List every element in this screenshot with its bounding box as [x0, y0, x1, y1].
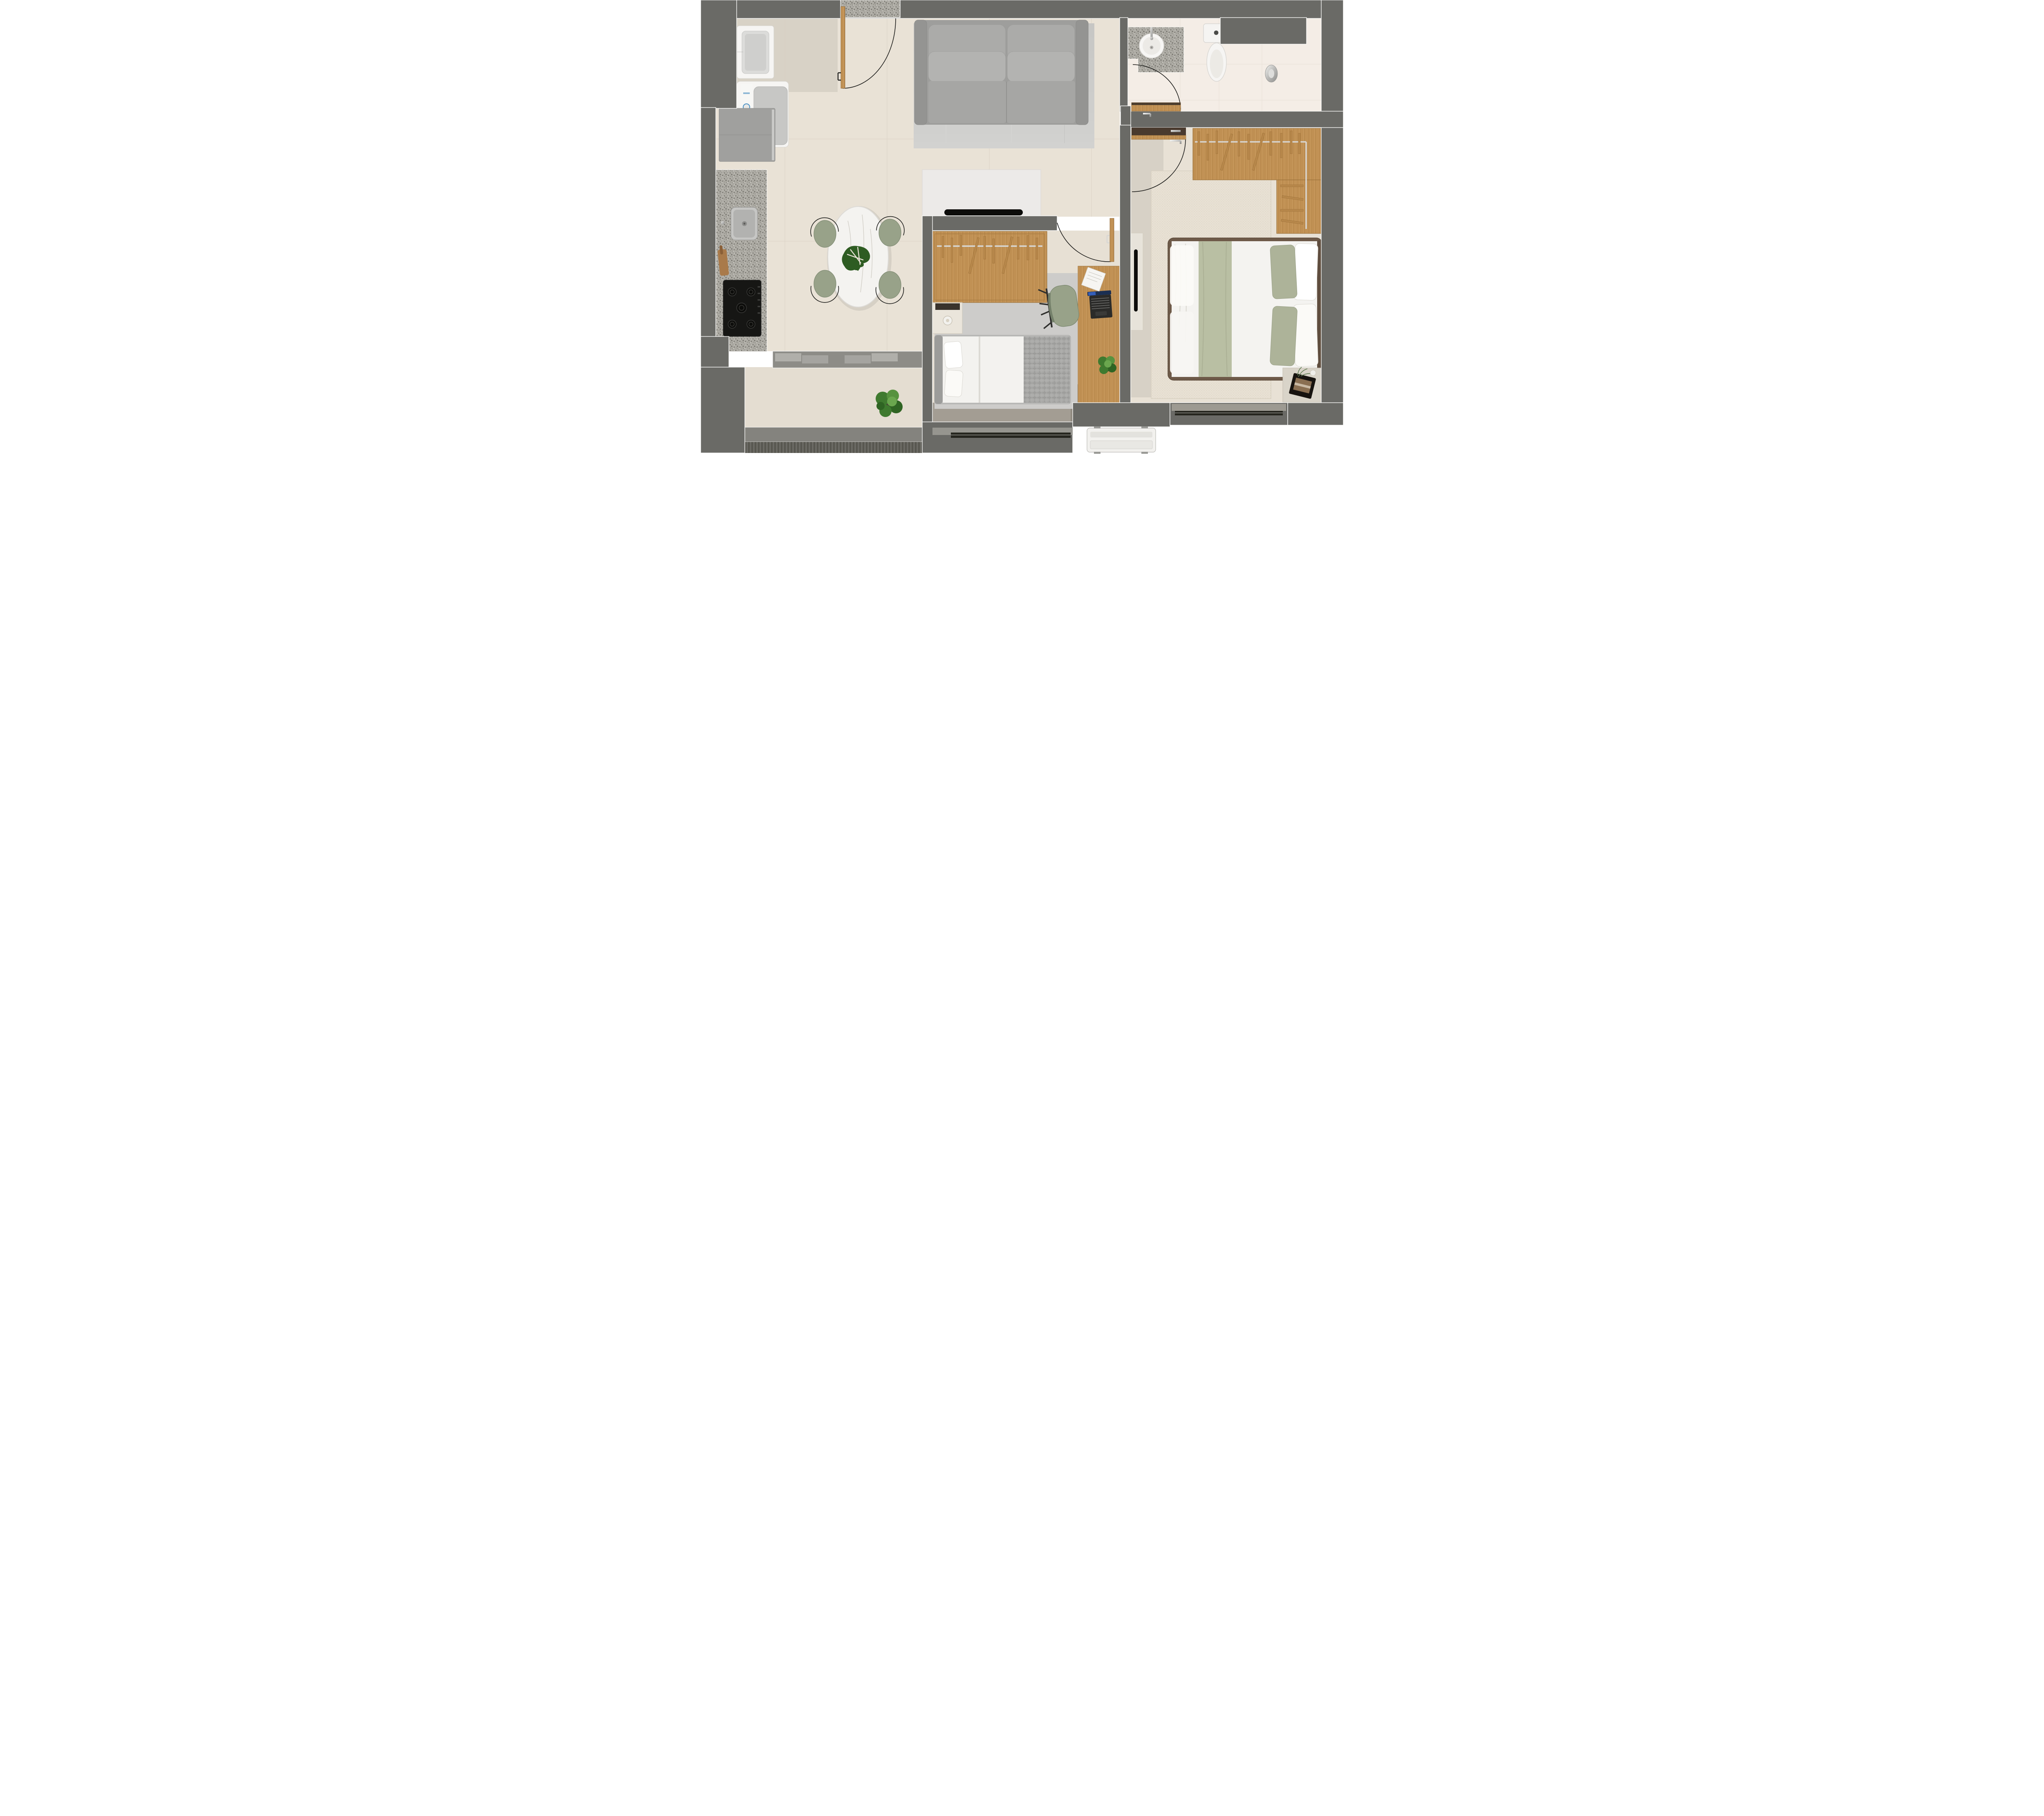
master-door-leaf-edge	[1132, 135, 1186, 139]
left-wall-column-top	[701, 0, 737, 108]
bedroom2-nightstand	[932, 303, 962, 334]
bath-master-wall-band	[1128, 111, 1343, 128]
west-window-band	[773, 351, 924, 368]
flush-button	[1214, 31, 1219, 35]
balcony-parapet	[745, 427, 922, 442]
desk-plant	[1098, 356, 1116, 374]
bottom-right-corner-wall	[1288, 403, 1343, 425]
bedroom2-door-leaf	[1110, 218, 1114, 262]
fridge-handle	[772, 110, 774, 160]
master-door-handle-top	[1171, 130, 1181, 132]
sofa	[914, 20, 1088, 125]
cooktop	[723, 280, 761, 336]
entry-threshold-granite	[840, 0, 900, 18]
bedroom2-window	[932, 428, 1073, 438]
central-vertical-wall	[1120, 125, 1131, 423]
television	[944, 209, 1023, 215]
top-wall	[702, 0, 1343, 18]
plaid-blanket	[1024, 336, 1070, 403]
bathroom-left-wall	[1120, 18, 1128, 112]
single-bed	[935, 335, 1071, 404]
bed2-headboard	[935, 335, 943, 404]
bedroom2-left-wall	[922, 216, 932, 423]
double-bed	[1168, 238, 1322, 380]
left-wall	[701, 108, 716, 337]
refrigerator	[719, 108, 775, 161]
draped-sheet-bottom	[1170, 312, 1194, 374]
left-wall-lower	[701, 336, 729, 369]
floor-plan-stage	[701, 0, 1343, 454]
ac-condenser-unit	[1087, 426, 1156, 454]
tv-wall-panel	[922, 170, 1041, 216]
entry-door-leaf	[841, 7, 845, 88]
laundry-tank	[733, 26, 774, 78]
bathroom-top-step-wall	[1220, 18, 1307, 44]
master-nightstand	[1283, 367, 1321, 402]
picture-frame	[935, 303, 960, 310]
bedroom2-top-wall	[922, 216, 1057, 231]
desk	[1078, 266, 1120, 422]
washer-buttons	[743, 92, 750, 94]
floor-plan	[701, 0, 1343, 454]
bottom-center-wall-block	[1073, 403, 1170, 427]
cup	[1310, 370, 1316, 376]
bedroom2-wardrobe	[932, 231, 1047, 303]
duvet-fold	[979, 336, 980, 403]
laptop	[1087, 290, 1113, 319]
sink-faucet-base	[721, 221, 725, 225]
master-tv	[1134, 249, 1138, 312]
balcony-threshold	[745, 442, 922, 453]
vanity-faucet	[1150, 27, 1153, 38]
master-tv-cabinet	[1131, 233, 1143, 330]
master-window	[1172, 404, 1286, 415]
left-wall-column-bottom	[701, 367, 745, 453]
hall-pillar	[1121, 106, 1131, 127]
right-wall	[1321, 0, 1343, 405]
draped-sheet-top	[1170, 245, 1194, 306]
